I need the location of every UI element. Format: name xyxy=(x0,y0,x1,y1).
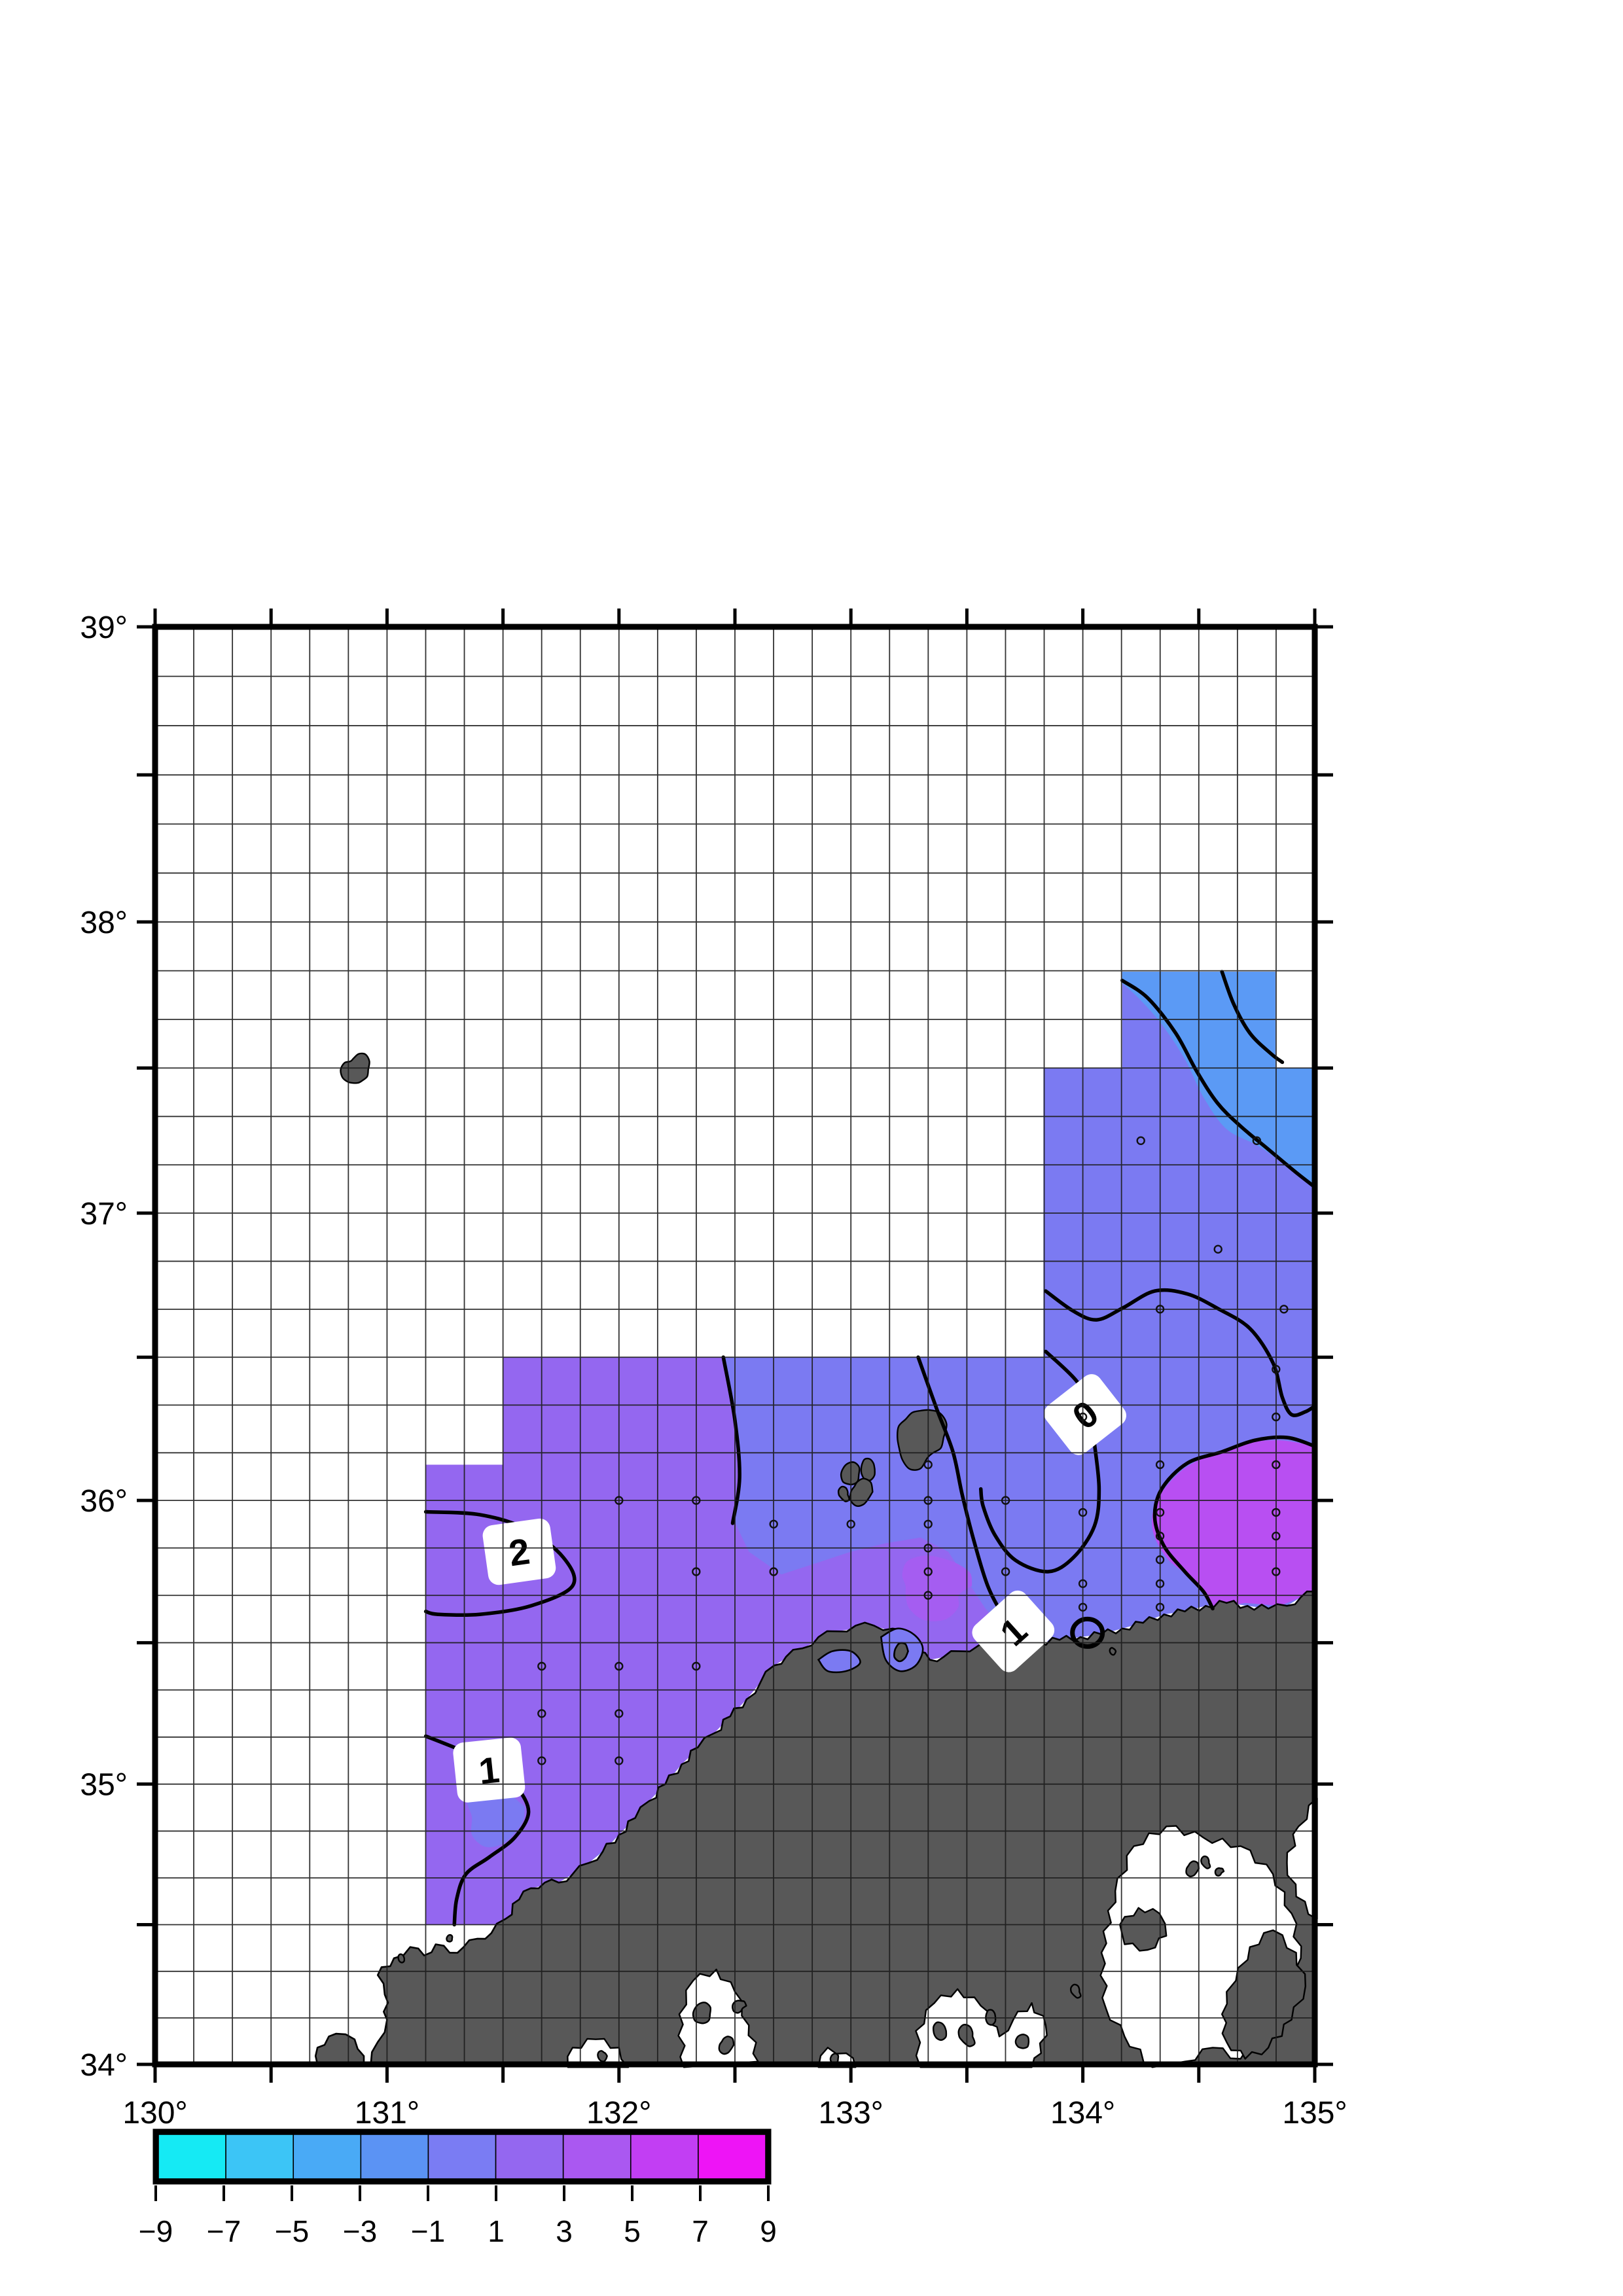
colorbar-tick-label: 7 xyxy=(692,2214,709,2248)
x-axis-label: 131° xyxy=(355,2096,419,2130)
colorbar-tick-label: −1 xyxy=(411,2214,445,2248)
island-oki-dozen xyxy=(861,1458,875,1481)
contour-label-2: 2 xyxy=(482,1517,558,1587)
colorbar-cell xyxy=(496,2134,563,2179)
colorbar-cell xyxy=(293,2134,361,2179)
colorbar-cell xyxy=(631,2134,698,2179)
island xyxy=(1016,2034,1029,2048)
x-axis-label: 133° xyxy=(819,2096,883,2130)
colorbar-cell xyxy=(361,2134,428,2179)
colorbar-cell xyxy=(226,2134,293,2179)
colorbar-tick-label: −3 xyxy=(343,2214,377,2248)
x-axis-label: 134° xyxy=(1050,2096,1115,2130)
y-axis-label: 37° xyxy=(80,1197,128,1231)
y-axis-label: 34° xyxy=(80,2048,128,2083)
colorbar-tick-label: −5 xyxy=(275,2214,309,2248)
colorbar-tick-label: −7 xyxy=(207,2214,241,2248)
contour-label-text: 1 xyxy=(477,1749,502,1792)
colorbar-tick-label: −9 xyxy=(139,2214,173,2248)
contour-label-1: 1 xyxy=(452,1737,526,1803)
colorbar-cell xyxy=(428,2134,495,2179)
x-axis-label: 132° xyxy=(586,2096,651,2130)
colorbar: −9−7−5−3−113579 xyxy=(139,2132,777,2248)
colorbar-tick-label: 1 xyxy=(488,2214,505,2248)
colorbar-cell xyxy=(158,2134,226,2179)
colorbar-cell xyxy=(698,2134,766,2179)
x-axis-label: 130° xyxy=(122,2096,187,2130)
island xyxy=(399,1954,404,1963)
y-axis-label: 35° xyxy=(80,1768,128,1803)
kyushu-corner xyxy=(315,2034,364,2064)
y-axis-label: 39° xyxy=(80,610,128,645)
colorbar-tick-label: 9 xyxy=(760,2214,777,2248)
colorbar-tick-label: 5 xyxy=(624,2214,641,2248)
y-axis-label: 38° xyxy=(80,906,128,940)
colorbar-tick-label: 3 xyxy=(556,2214,573,2248)
island xyxy=(446,1935,452,1941)
island xyxy=(1110,1648,1116,1655)
y-axis-label: 36° xyxy=(80,1484,128,1519)
x-axis-label: 135° xyxy=(1282,2096,1347,2130)
gmt-map-figure: 2101130°131°132°133°134°135°34°35°36°37°… xyxy=(0,0,1623,2296)
island xyxy=(933,2022,946,2040)
map-canvas: 2101130°131°132°133°134°135°34°35°36°37°… xyxy=(0,0,1623,2296)
colorbar-cell xyxy=(563,2134,631,2179)
